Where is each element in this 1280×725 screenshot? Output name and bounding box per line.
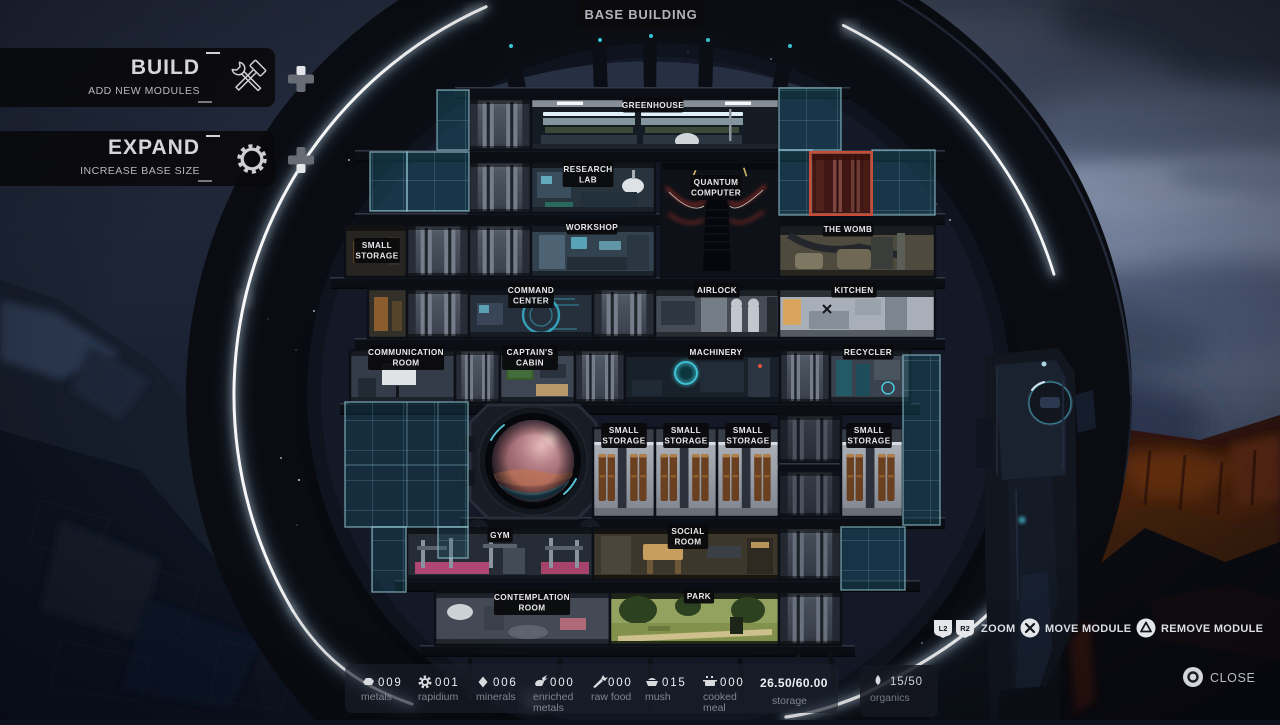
svg-text:minerals: minerals — [476, 691, 516, 703]
svg-text:metals: metals — [361, 691, 392, 703]
svg-text:BASE BUILDING: BASE BUILDING — [585, 7, 698, 22]
svg-text:26.50/60.00: 26.50/60.00 — [760, 676, 828, 690]
svg-text:000: 000 — [608, 677, 633, 689]
svg-text:R2: R2 — [960, 624, 970, 633]
svg-text:015: 015 — [662, 677, 687, 689]
svg-text:metals: metals — [533, 702, 564, 714]
svg-text:ZOOM: ZOOM — [981, 623, 1016, 635]
svg-text:001: 001 — [435, 677, 460, 689]
svg-text:organics: organics — [870, 692, 910, 704]
svg-text:storage: storage — [772, 695, 807, 707]
svg-text:raw food: raw food — [591, 691, 631, 703]
svg-text:BUILD: BUILD — [131, 56, 200, 79]
svg-text:mush: mush — [645, 691, 671, 703]
svg-text:L2: L2 — [939, 624, 948, 633]
svg-text:ADD NEW MODULES: ADD NEW MODULES — [88, 85, 200, 97]
svg-text:EXPAND: EXPAND — [108, 136, 200, 159]
svg-text:009: 009 — [378, 677, 403, 689]
svg-text:006: 006 — [493, 677, 518, 689]
svg-text:MOVE MODULE: MOVE MODULE — [1045, 623, 1131, 635]
svg-text:15/50: 15/50 — [890, 676, 923, 688]
svg-text:CLOSE: CLOSE — [1210, 671, 1255, 685]
svg-text:INCREASE BASE SIZE: INCREASE BASE SIZE — [80, 165, 200, 177]
svg-text:000: 000 — [550, 677, 575, 689]
svg-text:REMOVE MODULE: REMOVE MODULE — [1161, 623, 1263, 635]
svg-text:meal: meal — [703, 702, 726, 714]
svg-text:rapidium: rapidium — [418, 691, 459, 703]
svg-text:000: 000 — [720, 677, 745, 689]
